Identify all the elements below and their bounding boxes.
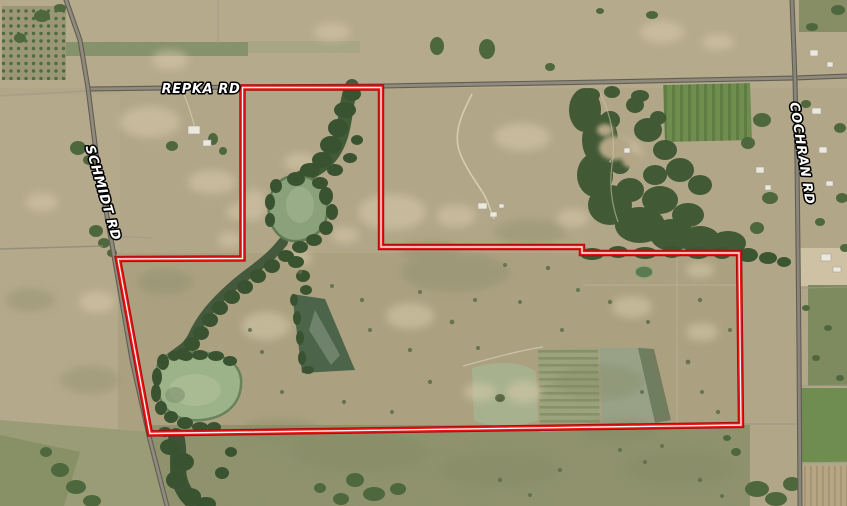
map-canvas: REPKA RD SCHMIDT RD COCHRAN RD xyxy=(0,0,847,506)
repka-rd-label: REPKA RD xyxy=(162,82,241,97)
satellite-map[interactable]: REPKA RD SCHMIDT RD COCHRAN RD xyxy=(0,0,847,506)
